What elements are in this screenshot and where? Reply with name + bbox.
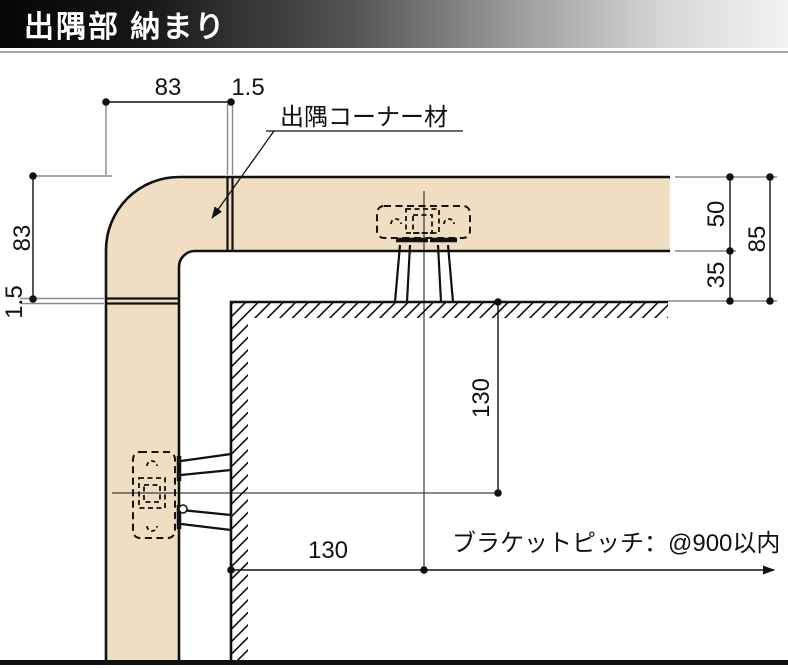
screenshot-root: 出隅部 納まり (0, 0, 788, 668)
dim-rail-depth: 50 (703, 201, 730, 228)
dim-bracket-offset-down: 130 (468, 378, 495, 418)
dim-wall-clearance: 35 (703, 262, 730, 289)
floor-line (0, 660, 788, 665)
dim-overall-depth: 85 (744, 226, 771, 253)
section-title: 出隅部 納まり (0, 2, 226, 46)
bracket-pitch-label: ブラケットピッチ：@900以内 (452, 530, 780, 557)
dim-bracket-offset-side: 130 (308, 537, 348, 564)
technical-drawing: 83 1.5 83 1.5 50 35 85 130 130 出隅コーナー材 ブ… (0, 48, 788, 668)
wall-hatch (231, 302, 668, 665)
left-bracket-stem (179, 454, 231, 530)
section-header: 出隅部 納まり (0, 0, 788, 48)
wall-edge (231, 302, 668, 665)
dim-left-height: 83 (9, 225, 36, 252)
dim-top-joint-gap: 1.5 (231, 74, 264, 101)
dim-left-joint-gap: 1.5 (1, 285, 28, 318)
dim-top-width: 83 (155, 74, 182, 101)
corner-material-label: 出隅コーナー材 (280, 104, 448, 131)
